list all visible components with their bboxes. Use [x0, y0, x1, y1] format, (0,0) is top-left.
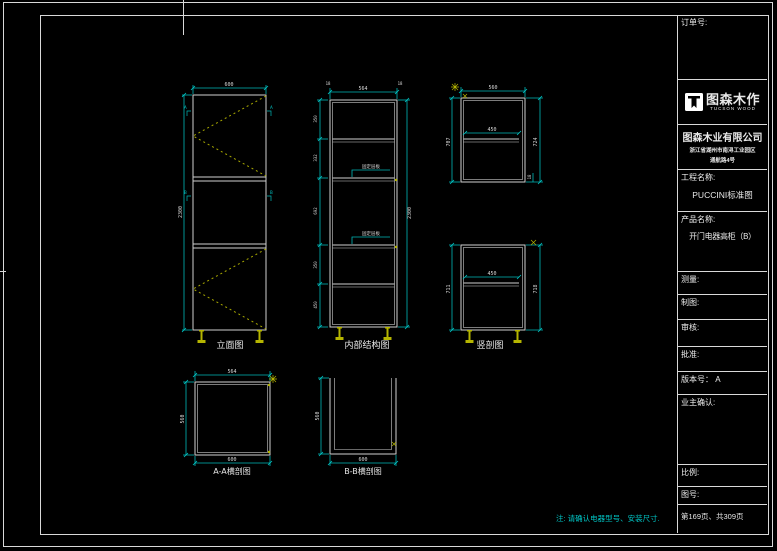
cabinet-foot	[514, 330, 522, 343]
door-swing-bottom	[193, 249, 266, 329]
elevation-label: 立面图	[216, 339, 243, 351]
approve-row: 批准:	[678, 347, 767, 372]
review-label: 审核:	[681, 323, 699, 332]
drawing-no-label: 图号:	[681, 490, 699, 499]
dim-compartment: 332	[313, 154, 318, 162]
draft-label: 制图:	[681, 298, 699, 307]
dim-shelf-depth: 450	[487, 271, 496, 277]
detail-mark	[531, 240, 536, 245]
measure-label: 测量:	[681, 275, 699, 284]
edge-tick	[0, 271, 6, 272]
logo-name: 图森木作	[706, 93, 760, 106]
dim-compartment: 450	[313, 301, 318, 309]
vertical-section-label: 竖剖图	[476, 339, 503, 351]
product-label: 产品名称:	[681, 215, 715, 224]
dim-panel-right: 18	[398, 81, 403, 86]
dim-compartment: 692	[313, 207, 318, 215]
company-address-line1: 浙江省湖州市南浔工业园区	[681, 146, 764, 154]
owner-confirm-row: 业主确认:	[678, 395, 767, 465]
dim-internal-height: 2300	[407, 207, 413, 219]
project-label: 工程名称:	[681, 173, 715, 182]
dim-bb-width: 600	[358, 457, 367, 463]
company-address-line2: 通航路4号	[681, 156, 764, 164]
aa-section-label: A-A横剖图	[213, 466, 250, 476]
dim-elevation-height: 2300	[178, 206, 184, 218]
review-row: 审核:	[678, 320, 767, 347]
logo-row: 图森木作 TUCSON WOOD	[678, 80, 767, 125]
bb-section-label: B-B横剖图	[344, 466, 382, 476]
door-swing-top	[193, 96, 266, 176]
fixed-shelf-callout: 固定层板	[362, 230, 380, 237]
cabinet-foot	[384, 327, 392, 340]
bb-section-view: 560 600 B-B横剖图	[315, 376, 398, 476]
dim-internal-width: 564	[358, 86, 367, 92]
product-row: 产品名称: 开门电器高柜（B）	[678, 212, 767, 272]
cabinet-foot	[256, 330, 264, 343]
vertical-section-lower: 450 711 718 竖剖图	[446, 240, 543, 351]
page-info: 第169页、共309页	[681, 512, 744, 521]
tucson-logo-icon	[685, 93, 703, 111]
dim-upper-right-height: 724	[533, 137, 539, 146]
version-row: 版本号： A	[678, 372, 767, 395]
internal-structure-view: 固定层板 固定层板 350 332 692 350 450 564 18 18	[313, 81, 413, 351]
project-value: PUCCINI标准图	[681, 189, 764, 201]
dim-aa-depth: 560	[180, 414, 186, 423]
scale-row: 比例:	[678, 465, 767, 487]
dim-lower-right-height: 718	[533, 284, 539, 293]
company-row: 图森木业有限公司 浙江省湖州市南浔工业园区 通航路4号	[678, 125, 767, 170]
dim-compartment: 350	[313, 115, 318, 123]
section-marker-b-left: B	[184, 190, 187, 195]
drawing-area: 600 2300 A A B B 立面图	[40, 15, 677, 533]
dim-elevation-width: 600	[224, 82, 233, 88]
measure-row: 测量:	[678, 272, 767, 295]
cad-sheet: 600 2300 A A B B 立面图	[0, 0, 777, 551]
order-number-label: 订单号:	[681, 18, 707, 27]
logo-texts: 图森木作 TUCSON WOOD	[706, 93, 760, 112]
note-text: 注: 请确认电器型号、安装尺寸.	[556, 513, 660, 524]
order-number-row: 订单号:	[678, 15, 767, 80]
dim-bb-depth: 560	[315, 411, 321, 420]
fixed-shelf-callout: 固定层板	[362, 163, 380, 170]
logo-subtitle: TUCSON WOOD	[710, 107, 756, 112]
draft-row: 制图:	[678, 295, 767, 320]
company-name: 图森木业有限公司	[681, 129, 764, 144]
title-block: 订单号: 图森木作 TUCSON WOOD 图森木业有限公司 浙江省湖州市南浔工…	[677, 15, 767, 533]
product-value: 开门电器高柜（B）	[681, 231, 764, 242]
dim-aa-top: 564	[227, 369, 236, 375]
dim-upper-width: 560	[488, 85, 497, 91]
internal-structure-label: 内部结构图	[344, 339, 389, 351]
dim-lower-left-height: 711	[446, 284, 452, 293]
scale-label: 比例:	[681, 468, 699, 477]
owner-confirm-label: 业主确认:	[681, 398, 715, 407]
aa-section-view: 564 560 600 A-A横剖图	[180, 369, 277, 476]
detail-mark	[451, 83, 467, 98]
cabinet-foot	[466, 330, 474, 343]
vertical-section-upper: 450 560 707 724 18	[446, 83, 543, 184]
dim-upper-panel: 18	[527, 174, 532, 179]
section-marker-b-right: B	[270, 190, 273, 195]
dim-shelf-depth: 450	[487, 127, 496, 133]
detail-mark	[392, 442, 396, 446]
cabinet-foot	[198, 330, 206, 343]
section-marker-a-right: A	[270, 105, 273, 110]
drawing-no-row: 图号:	[678, 487, 767, 505]
dim-aa-width: 600	[227, 457, 236, 463]
dim-upper-left-height: 707	[446, 137, 452, 146]
cabinet-foot	[336, 327, 344, 340]
approve-label: 批准:	[681, 350, 699, 359]
elevation-view: 600 2300 A A B B 立面图	[178, 82, 273, 351]
section-marker-a-left: A	[184, 105, 187, 110]
detail-mark	[268, 375, 277, 453]
dim-panel-left: 18	[326, 81, 331, 86]
dim-compartment: 350	[313, 261, 318, 269]
project-row: 工程名称: PUCCINI标准图	[678, 170, 767, 212]
version-label: 版本号： A	[681, 375, 721, 384]
page-info-row: 第169页、共309页	[678, 505, 767, 533]
